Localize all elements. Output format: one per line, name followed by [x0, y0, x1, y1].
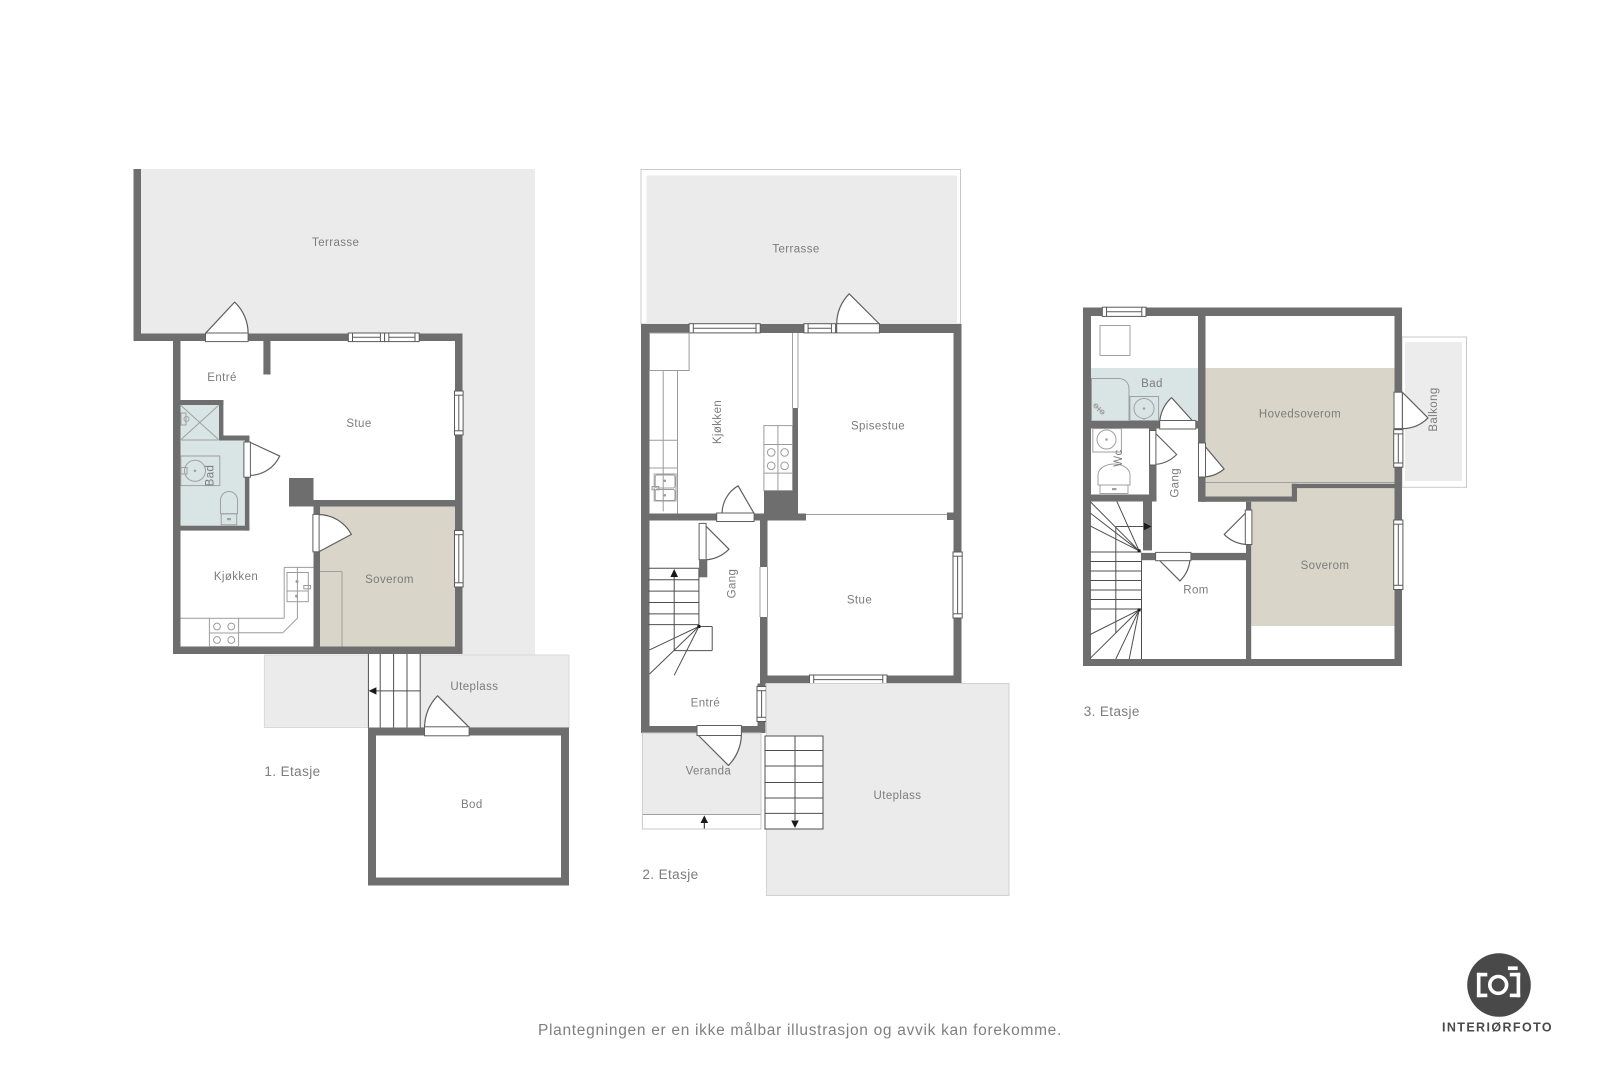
svg-text:Stue: Stue: [346, 418, 371, 430]
svg-text:2. Etasje: 2. Etasje: [642, 867, 698, 882]
svg-text:Terrasse: Terrasse: [772, 244, 819, 256]
svg-text:Entré: Entré: [691, 698, 721, 710]
svg-text:Wc: Wc: [1113, 449, 1125, 466]
svg-text:INTERIØRFOTO: INTERIØRFOTO: [1442, 1021, 1553, 1035]
svg-text:Rom: Rom: [1183, 585, 1208, 597]
svg-text:3. Etasje: 3. Etasje: [1084, 704, 1140, 719]
svg-text:Hovedsoverom: Hovedsoverom: [1259, 409, 1341, 421]
svg-text:Bad: Bad: [1141, 378, 1163, 390]
svg-text:Kjøkken: Kjøkken: [214, 571, 258, 583]
svg-text:Soverom: Soverom: [365, 574, 414, 586]
svg-text:1. Etasje: 1. Etasje: [264, 764, 320, 779]
svg-text:Veranda: Veranda: [686, 766, 732, 778]
svg-text:Kjøkken: Kjøkken: [712, 400, 724, 444]
svg-text:Uteplass: Uteplass: [450, 681, 498, 693]
svg-text:Stue: Stue: [847, 595, 872, 607]
svg-text:Uteplass: Uteplass: [874, 790, 922, 802]
svg-text:Gang: Gang: [1169, 468, 1181, 498]
svg-text:Balkong: Balkong: [1428, 387, 1440, 431]
svg-text:Soverom: Soverom: [1301, 560, 1350, 572]
svg-text:Bod: Bod: [461, 799, 483, 811]
svg-text:Bad: Bad: [205, 465, 217, 487]
svg-text:Entré: Entré: [207, 372, 237, 384]
svg-text:Spisestue: Spisestue: [851, 421, 905, 433]
svg-text:Gang: Gang: [727, 569, 739, 599]
svg-text:Terrasse: Terrasse: [312, 237, 359, 249]
svg-text:Plantegningen er en ikke målba: Plantegningen er en ikke målbar illustra…: [538, 1022, 1062, 1039]
